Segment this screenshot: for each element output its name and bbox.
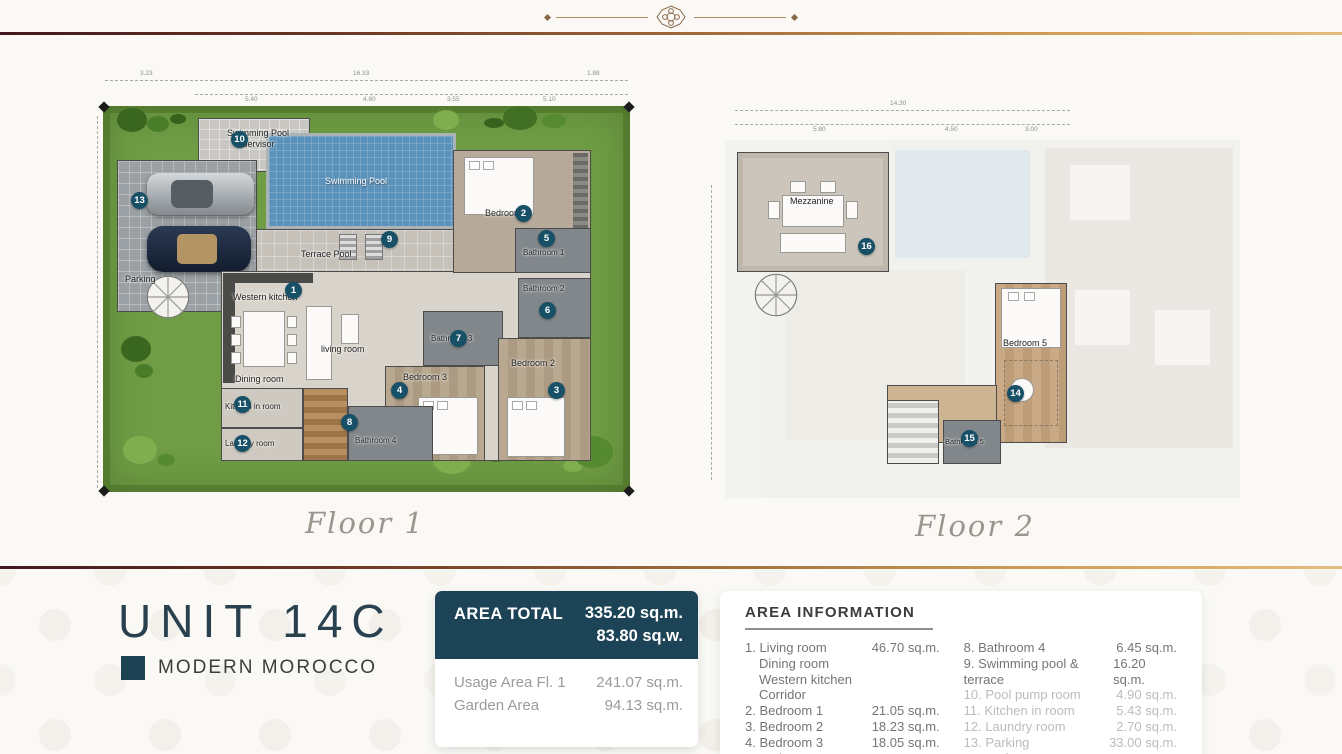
bathroom4-label: Bathroom 4: [355, 436, 396, 445]
area-item-value: 4.90 sq.m.: [1116, 687, 1177, 703]
area-item-value: 16.20 sq.m.: [1113, 656, 1177, 688]
floor2-caption: Floor 2: [900, 509, 1050, 543]
swimming-pool-label: Swimming Pool: [325, 176, 387, 186]
parking-label: Parking: [125, 274, 156, 284]
area-item: 3. Bedroom 2 18.23 sq.m.: [745, 719, 940, 735]
pillow: [483, 161, 494, 170]
dimension-label: 4.50: [945, 126, 958, 133]
area-total-sqm: 335.20 sq.m.: [585, 602, 683, 625]
dimension-line: [97, 116, 98, 488]
dimension-label: 16.33: [353, 70, 369, 77]
unit-style-label: MODERN MOROCCO: [158, 657, 377, 679]
pillow: [1008, 292, 1019, 301]
area-information-right-column: 8. Bathroom 4 6.45 sq.m. 9. Swimming poo…: [964, 640, 1177, 754]
area-total-values: 335.20 sq.m. 83.80 sq.w.: [585, 602, 683, 648]
area-information-columns: 1. Living room 46.70 sq.m. Dining room W…: [745, 640, 1177, 754]
area-item: 1. Living room 46.70 sq.m.: [745, 640, 940, 656]
area-total-title: AREA TOTAL: [454, 605, 563, 648]
dimension-label: 14.30: [890, 100, 906, 107]
sofa: [780, 233, 846, 253]
bush: [503, 106, 537, 130]
chair: [846, 201, 858, 219]
area-item-label: 1. Living room: [745, 640, 827, 656]
ghost-furniture: [1155, 310, 1210, 365]
pillow: [512, 401, 523, 410]
room-badge-10: 10: [231, 131, 248, 148]
room-badge-4: 4: [391, 382, 408, 399]
kitchen-counter: [223, 273, 313, 283]
room-badge-1: 1: [285, 282, 302, 299]
room-badge-8: 8: [341, 414, 358, 431]
area-item-value: 4.48 sq.m.: [879, 751, 940, 754]
area-item: 4. Bedroom 3 18.05 sq.m.: [745, 735, 940, 751]
area-item: 13. Parking 33.00 sq.m.: [964, 735, 1177, 751]
pillow: [437, 401, 448, 410]
ghost-furniture: [1075, 290, 1130, 345]
room-badge-11: 11: [234, 396, 251, 413]
area-item-value: 2.70 sq.m.: [1116, 719, 1177, 735]
mezzanine-label: Mezzanine: [790, 196, 834, 206]
chair: [287, 316, 297, 328]
area-item-value: 18.23 sq.m.: [872, 719, 940, 735]
ornament-diamond: [544, 13, 551, 20]
area-item-value: 22.65 sq.m.: [1109, 751, 1177, 754]
area-item: 2. Bedroom 1 21.05 sq.m.: [745, 703, 940, 719]
room-badge-5: 5: [538, 230, 555, 247]
pool-pump-room-label: Swimming Pool Servisor: [210, 128, 306, 150]
area-item-value: 21.05 sq.m.: [872, 703, 940, 719]
area-information-title: AREA INFORMATION: [745, 604, 1177, 621]
bedroom3-label: Bedroom 3: [403, 372, 447, 382]
dimension-label: 4.80: [363, 96, 376, 103]
area-item: 10. Pool pump room 4.90 sq.m.: [964, 687, 1177, 703]
bedroom5-room: [995, 283, 1067, 443]
bush: [121, 336, 151, 362]
floor2-stairs: [887, 400, 939, 464]
car-silver: [147, 173, 254, 215]
dimension-label: 5.10: [543, 96, 556, 103]
room-badge-9: 9: [381, 231, 398, 248]
usage-area-row: Usage Area Fl. 1 241.07 sq.m.: [454, 674, 683, 691]
floor1-caption: Floor 1: [290, 506, 440, 540]
chair: [287, 352, 297, 364]
dimension-label: 3.23: [140, 70, 153, 77]
area-item: 14. Bedroom 5 22.65 sq.m.: [964, 751, 1177, 754]
area-item: 5. Bathroom 1 4.48 sq.m.: [745, 751, 940, 754]
garden-area-row: Garden Area 94.13 sq.m.: [454, 697, 683, 714]
pillow: [526, 401, 537, 410]
area-item-sub: Corridor: [745, 687, 940, 703]
room-badge-2: 2: [515, 205, 532, 222]
room-badge-14: 14: [1007, 385, 1024, 402]
chair: [768, 201, 780, 219]
corner-pin: [623, 485, 634, 496]
terrace-pool-label: Terrace Pool: [301, 249, 352, 259]
bed: [507, 397, 565, 457]
dimension-label: 1.88: [587, 70, 600, 77]
area-item-label: 2. Bedroom 1: [745, 703, 823, 719]
living-room-label: living room: [321, 344, 365, 354]
dimension-label: 3.55: [447, 96, 460, 103]
area-item-value: 18.05 sq.m.: [872, 735, 940, 751]
car-convertible: [147, 226, 251, 272]
pillow: [469, 161, 480, 170]
unit-style: MODERN MOROCCO: [121, 656, 377, 680]
chair: [231, 316, 241, 328]
area-item-label: 10. Pool pump room: [964, 687, 1081, 703]
area-item: 8. Bathroom 4 6.45 sq.m.: [964, 640, 1177, 656]
area-item-label: 4. Bedroom 3: [745, 735, 823, 751]
dimension-line: [105, 80, 628, 81]
dining-table: [243, 311, 285, 367]
chair: [231, 334, 241, 346]
dimension-line: [735, 110, 1070, 111]
area-item-label: 8. Bathroom 4: [964, 640, 1046, 656]
room-badge-16: 16: [858, 238, 875, 255]
area-item-value: 5.43 sq.m.: [1116, 703, 1177, 719]
dimension-line: [195, 94, 628, 95]
dimension-line: [711, 185, 712, 480]
area-item: 9. Swimming pool & terrace 16.20 sq.m.: [964, 656, 1177, 688]
style-square-icon: [121, 656, 145, 680]
floor1-garden: Swimming Pool Servisor 10 Swimming Pool …: [103, 106, 630, 492]
ornament-line: [694, 17, 786, 18]
section-gradient-divider: [0, 566, 1342, 569]
bedroom2-room: [498, 338, 591, 461]
header-ornament: [545, 5, 797, 29]
top-gradient-divider: [0, 32, 1342, 35]
area-item-label: 5. Bathroom 1: [745, 751, 827, 754]
bathroom2-label: Bathroom 2: [523, 284, 564, 293]
floor1-plan: 3.23 16.33 1.88 5.40 4.80 3.55 5.10 Swim…: [95, 68, 640, 500]
garden-area-label: Garden Area: [454, 697, 539, 714]
dimension-label: 5.40: [245, 96, 258, 103]
area-total-body: Usage Area Fl. 1 241.07 sq.m. Garden Are…: [435, 659, 698, 747]
ghost-pool: [895, 150, 1030, 258]
area-item-sub: Western kitchen: [745, 672, 940, 688]
car-cabin: [171, 180, 213, 208]
area-item: 12. Laundry room 2.70 sq.m.: [964, 719, 1177, 735]
coffee-table: [341, 314, 359, 344]
area-total-header: AREA TOTAL 335.20 sq.m. 83.80 sq.w.: [435, 591, 698, 659]
ornament-medallion-icon: [654, 5, 688, 29]
usage-area-value: 241.07 sq.m.: [596, 674, 683, 691]
dimension-label: 3.00: [1025, 126, 1038, 133]
dimension-line: [735, 124, 1070, 125]
chair: [231, 352, 241, 364]
room-badge-13: 13: [131, 192, 148, 209]
area-information-left-column: 1. Living room 46.70 sq.m. Dining room W…: [745, 640, 940, 754]
dining-room-label: Dining room: [235, 374, 284, 384]
area-item-label: 13. Parking: [964, 735, 1030, 751]
area-item-label: 9. Swimming pool & terrace: [964, 656, 1113, 688]
unit-name: UNIT 14C: [118, 594, 394, 648]
ghost-furniture: [1070, 165, 1130, 220]
bush: [117, 108, 147, 132]
usage-area-label: Usage Area Fl. 1: [454, 674, 566, 691]
area-item-value: 6.45 sq.m.: [1116, 640, 1177, 656]
area-item-value: 33.00 sq.m.: [1109, 735, 1177, 751]
area-item-label: 11. Kitchen in room: [964, 703, 1075, 719]
area-information-panel: AREA INFORMATION 1. Living room 46.70 sq…: [720, 591, 1202, 754]
room-badge-3: 3: [548, 382, 565, 399]
ornament-diamond: [791, 13, 798, 20]
spiral-stair-icon: [753, 272, 799, 318]
area-item-label: 14. Bedroom 5: [964, 751, 1049, 754]
ornament-line: [556, 17, 648, 18]
pillow: [1024, 292, 1035, 301]
room-badge-6: 6: [539, 302, 556, 319]
area-item-label: 12. Laundry room: [964, 719, 1066, 735]
chair: [790, 181, 806, 193]
palm: [433, 110, 459, 130]
bedroom2-label: Bedroom 2: [511, 358, 555, 368]
garden-area-value: 94.13 sq.m.: [605, 697, 683, 714]
bathroom1-label: Bathroom 1: [523, 248, 564, 257]
floor2-plan: 14.30 5.80 4.50 3.00 Mezzanine 16 Bedro: [695, 90, 1245, 515]
sofa: [306, 306, 332, 380]
area-item: 11. Kitchen in room 5.43 sq.m.: [964, 703, 1177, 719]
area-total-sqw: 83.80 sq.w.: [585, 625, 683, 648]
chair: [820, 181, 836, 193]
room-badge-12: 12: [234, 435, 251, 452]
bathroom4-room: [348, 406, 433, 461]
palm: [123, 436, 157, 464]
car-seats: [177, 234, 217, 264]
area-item-value: 46.70 sq.m.: [872, 640, 940, 656]
room-badge-7: 7: [450, 330, 467, 347]
area-item-label: 3. Bedroom 2: [745, 719, 823, 735]
area-information-rule: [745, 628, 933, 630]
corner-pin: [98, 101, 109, 112]
room-badge-15: 15: [961, 430, 978, 447]
corner-pin: [98, 485, 109, 496]
corner-pin: [623, 101, 634, 112]
area-item-sub: Dining room: [745, 656, 940, 672]
dimension-label: 5.80: [813, 126, 826, 133]
chair: [287, 334, 297, 346]
bedroom5-label: Bedroom 5: [1003, 338, 1047, 348]
area-total-card: AREA TOTAL 335.20 sq.m. 83.80 sq.w. Usag…: [435, 591, 698, 747]
